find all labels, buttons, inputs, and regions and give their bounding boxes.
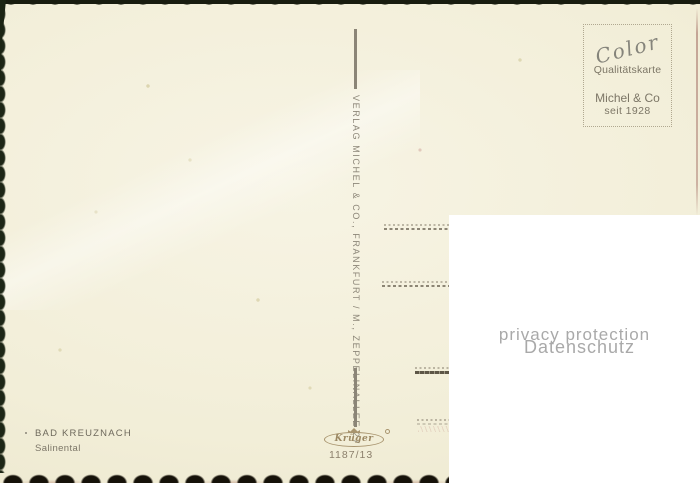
address-line-row [384, 224, 450, 226]
address-line-row [415, 367, 450, 369]
address-line-row [384, 228, 450, 230]
stamp-company: Michel & Co [584, 91, 671, 105]
address-line-3 [415, 367, 450, 374]
caption-block: BAD KREUZNACH Salinental [35, 428, 132, 454]
print-artifact-zigzag [418, 426, 449, 432]
stamp-box: Color Qualitätskarte Michel & Co seit 19… [583, 24, 672, 127]
card-number: 1187/13 [329, 449, 373, 461]
address-line-row [415, 371, 450, 374]
address-line-1 [384, 224, 450, 230]
publisher-spine-text: VERLAG MICHEL & CO., FRANKFURT / M., ZEP… [349, 95, 361, 367]
printer-logo: Krüger [324, 432, 384, 447]
divider-rule-top [354, 29, 357, 89]
privacy-overlay: privacy protection Datenschutz [449, 215, 700, 483]
postcard-back: VERLAG MICHEL & CO., FRANKFURT / M., ZEP… [0, 0, 700, 483]
divider-rule-bottom [354, 368, 357, 427]
registered-mark-icon [385, 429, 390, 434]
stamp-since: seit 1928 [584, 105, 671, 117]
address-line-row [417, 419, 450, 421]
caption-subtitle: Salinental [35, 443, 132, 454]
address-line-row [382, 285, 450, 287]
privacy-text: privacy protection Datenschutz [449, 328, 700, 354]
address-line-2 [382, 281, 450, 287]
deckle-edge-top [0, 0, 700, 10]
deckle-edge-left [0, 6, 7, 473]
scan-edge-shadow-right [696, 8, 698, 216]
address-line-row [417, 423, 450, 425]
caption-title: BAD KREUZNACH [35, 428, 132, 439]
caption-dot [25, 432, 27, 434]
address-line-row [382, 281, 450, 283]
address-line-4 [417, 419, 450, 425]
privacy-line2: Datenschutz [454, 341, 700, 354]
